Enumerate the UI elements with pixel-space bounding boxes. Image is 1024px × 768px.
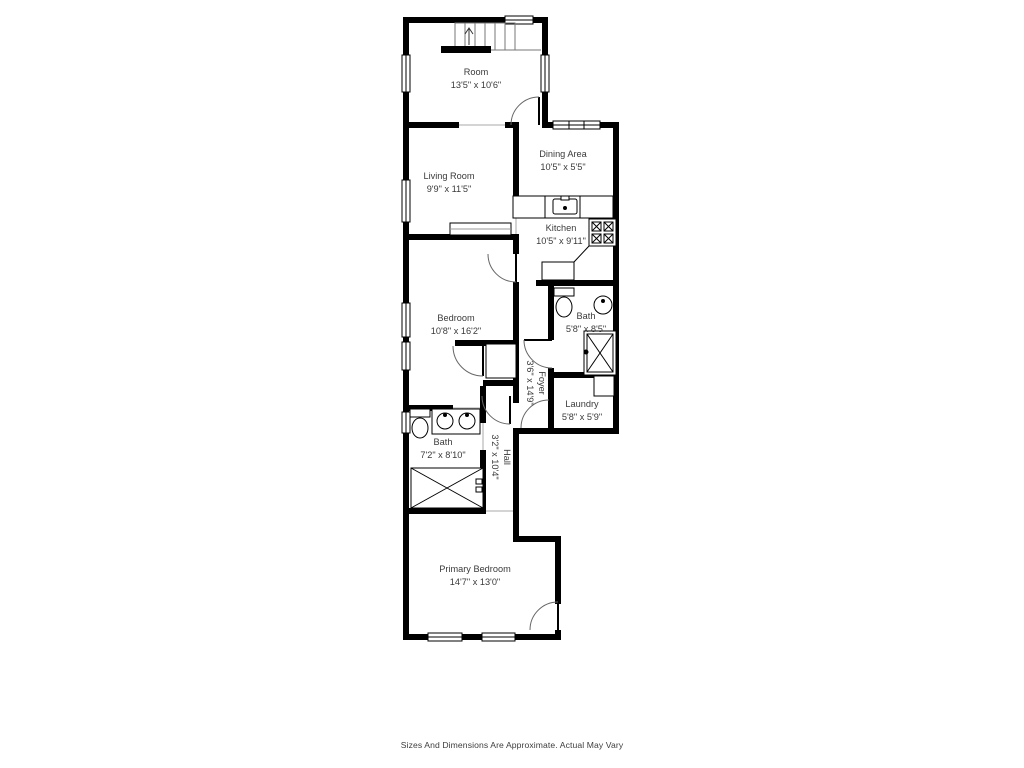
room-dims: 3'2" x 10'4"	[490, 434, 500, 479]
room-name: Kitchen	[546, 223, 577, 233]
room-label-living: Living Room 9'9" x 11'5"	[423, 171, 474, 194]
round-sink-icon	[594, 296, 612, 314]
toilet-icon	[554, 288, 574, 317]
room-dims: 7'2" x 8'10"	[420, 450, 465, 460]
room-name: Foyer	[537, 371, 547, 395]
room-dims: 9'9" x 11'5"	[427, 184, 472, 194]
room-label-hall: Hall 3'2" x 10'4"	[490, 434, 512, 479]
room-label-bath-upper: Bath 5'8" x 8'5"	[566, 311, 606, 334]
room-label-room: Room 13'5" x 10'6"	[451, 67, 501, 90]
room-name: Laundry	[565, 399, 599, 409]
room-dims: 10'8" x 16'2"	[431, 326, 481, 336]
living-closet	[450, 223, 511, 235]
door-primary	[530, 602, 558, 630]
door-room	[511, 97, 539, 125]
room-dims: 5'8" x 5'9"	[562, 412, 602, 422]
floor-plan: Room 13'5" x 10'6" Living Room 9'9" x 11…	[0, 0, 1024, 768]
room-name: Room	[464, 67, 489, 77]
room-label-laundry: Laundry 5'8" x 5'9"	[562, 399, 602, 422]
room-dims: 10'5" x 5'5"	[540, 162, 585, 172]
stove-icon	[589, 219, 616, 246]
room-dims: 13'5" x 10'6"	[451, 80, 501, 90]
door-closet	[453, 346, 483, 376]
room-name: Bath	[577, 311, 596, 321]
room-dims: 14'7" x 13'0"	[450, 577, 500, 587]
room-name: Hall	[502, 449, 512, 465]
door-bedroom	[488, 254, 516, 282]
shower-icon	[584, 331, 616, 375]
room-dims: 3'6" x 14'9"	[525, 360, 535, 405]
toilet-icon	[410, 409, 430, 438]
stairs-icon	[441, 23, 541, 53]
tub-icon	[411, 468, 483, 508]
room-name: Bedroom	[437, 313, 475, 323]
room-label-primary: Primary Bedroom 14'7" x 13'0"	[439, 564, 511, 587]
bedroom-closet	[486, 344, 516, 378]
kitchen-sink-icon	[553, 196, 577, 214]
room-label-bedroom: Bedroom 10'8" x 16'2"	[431, 313, 481, 336]
room-name: Dining Area	[539, 149, 587, 159]
double-vanity-icon	[432, 409, 480, 434]
linen-closet	[594, 376, 614, 396]
room-name: Primary Bedroom	[439, 564, 511, 574]
room-label-kitchen: Kitchen 10'5" x 9'11"	[536, 223, 586, 246]
room-dims: 10'5" x 9'11"	[536, 236, 586, 246]
door-hall	[482, 396, 510, 424]
room-name: Bath	[434, 437, 453, 447]
room-label-bath-hall: Bath 7'2" x 8'10"	[420, 437, 465, 460]
room-dims: 5'8" x 8'5"	[566, 324, 606, 334]
floorplan-page: Room 13'5" x 10'6" Living Room 9'9" x 11…	[0, 0, 1024, 768]
disclaimer-text: Sizes And Dimensions Are Approximate. Ac…	[0, 740, 1024, 750]
room-name: Living Room	[423, 171, 474, 181]
room-label-dining: Dining Area 10'5" x 5'5"	[539, 149, 587, 172]
